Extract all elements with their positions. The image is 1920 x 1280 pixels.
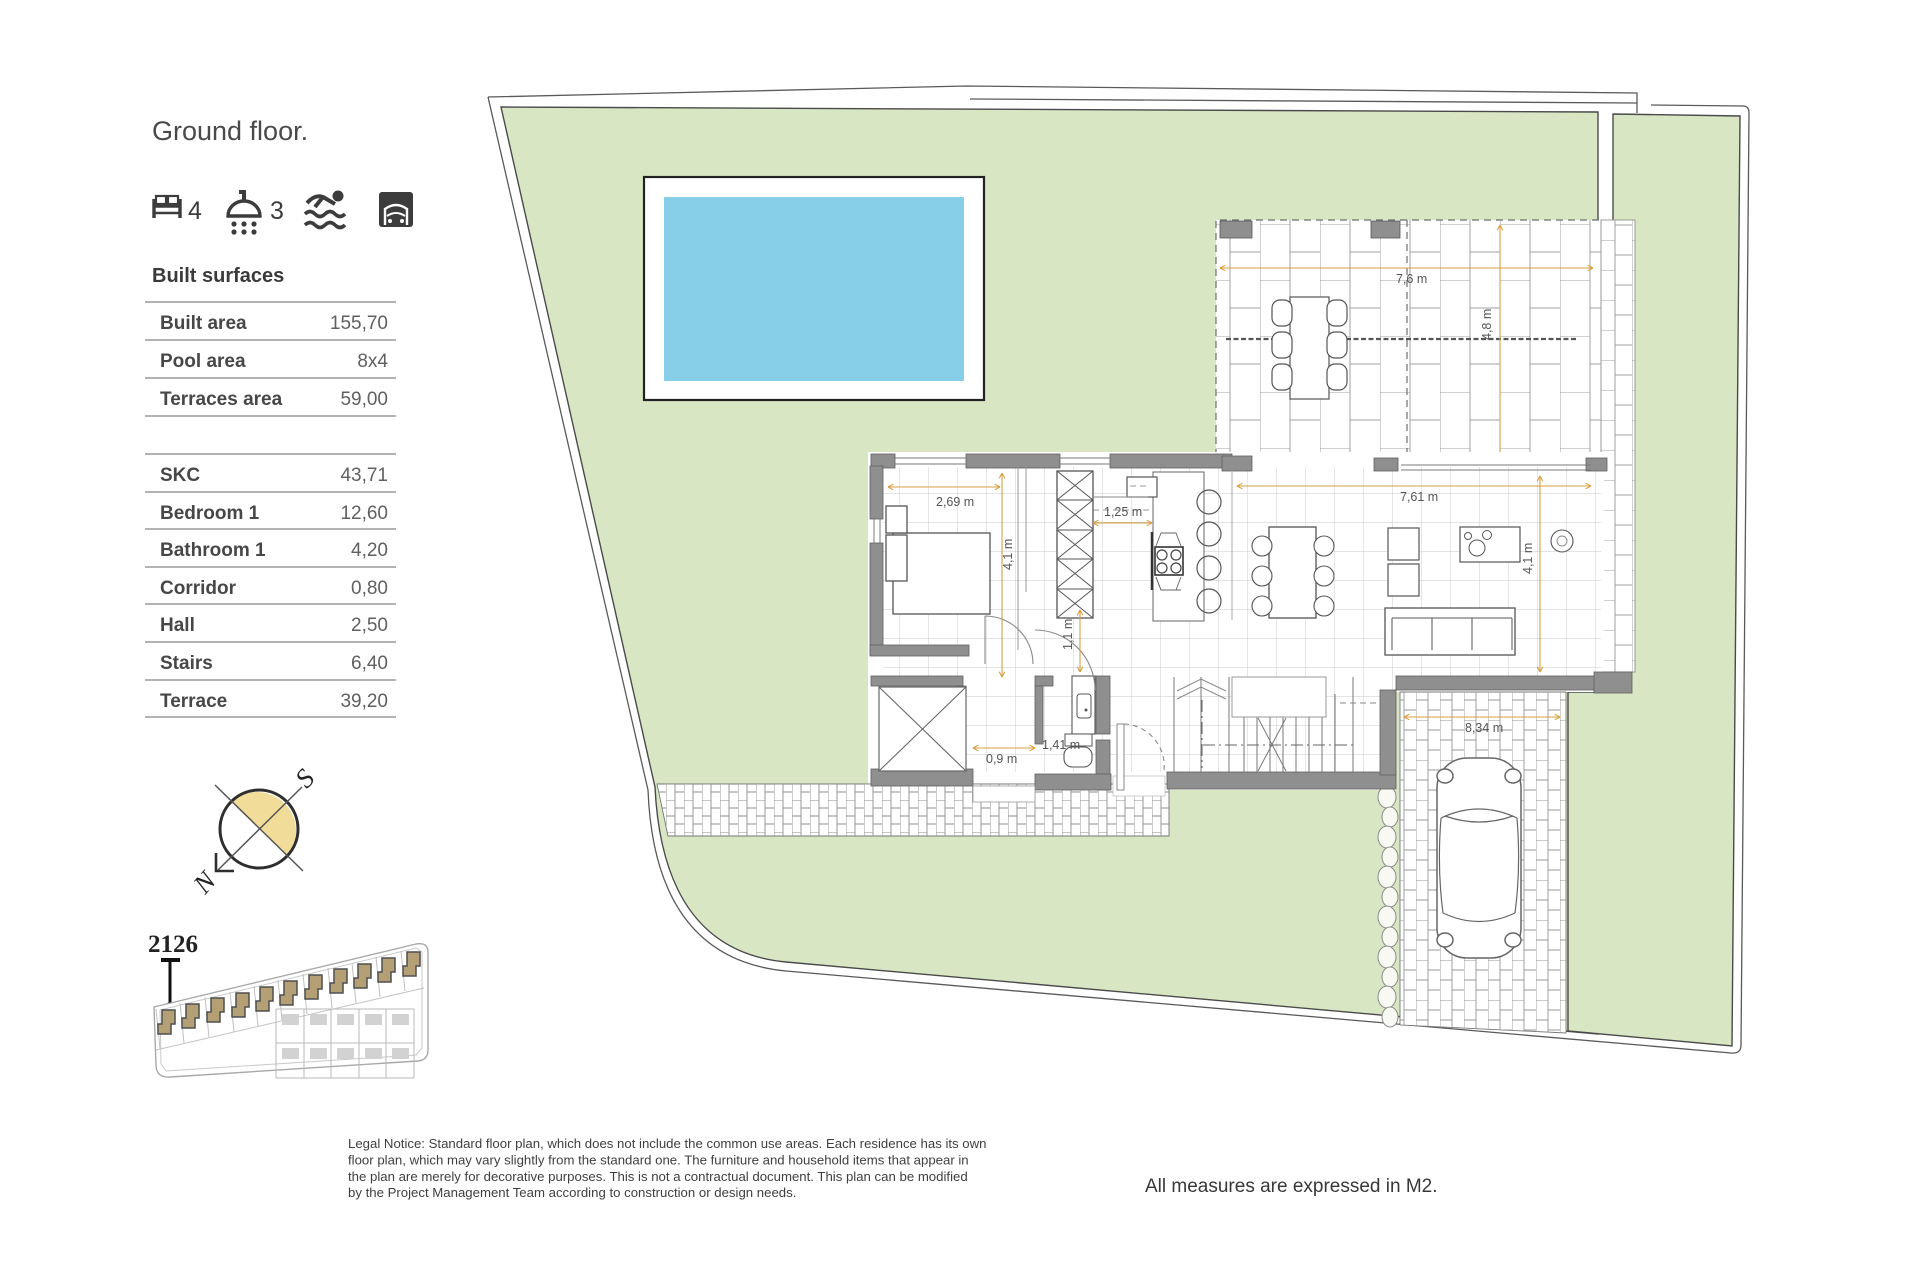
- svg-text:43,71: 43,71: [340, 465, 388, 486]
- svg-text:1,41 m: 1,41 m: [1042, 738, 1080, 752]
- svg-text:Corridor: Corridor: [160, 578, 237, 599]
- svg-text:Terrace: Terrace: [160, 691, 227, 712]
- svg-text:2,69 m: 2,69 m: [936, 495, 974, 509]
- svg-text:3: 3: [270, 197, 284, 225]
- svg-text:6,40: 6,40: [351, 653, 388, 674]
- svg-text:Stairs: Stairs: [160, 653, 213, 674]
- svg-text:7,6 m: 7,6 m: [1396, 272, 1427, 286]
- svg-text:59,00: 59,00: [340, 389, 388, 410]
- svg-text:the plan are merely for decora: the plan are merely for decorative purpo…: [348, 1169, 968, 1184]
- svg-text:Bathroom 1: Bathroom 1: [160, 540, 266, 561]
- svg-text:Pool area: Pool area: [160, 351, 246, 372]
- svg-text:1,25 m: 1,25 m: [1104, 505, 1142, 519]
- svg-text:Ground floor.: Ground floor.: [152, 116, 308, 146]
- svg-text:Built area: Built area: [160, 313, 247, 334]
- svg-text:39,20: 39,20: [340, 691, 388, 712]
- svg-text:12,60: 12,60: [340, 503, 388, 524]
- svg-text:2126: 2126: [148, 931, 198, 958]
- svg-text:4,20: 4,20: [351, 540, 388, 561]
- svg-text:7,61 m: 7,61 m: [1400, 490, 1438, 504]
- svg-text:S: S: [289, 763, 321, 793]
- svg-text:Built surfaces: Built surfaces: [152, 265, 284, 287]
- svg-text:4: 4: [188, 197, 202, 225]
- svg-text:Terraces area: Terraces area: [160, 389, 283, 410]
- svg-text:Bedroom 1: Bedroom 1: [160, 503, 260, 524]
- svg-text:All measures are expressed in: All measures are expressed in M2.: [1145, 1176, 1438, 1197]
- svg-text:Legal Notice: Standard floor p: Legal Notice: Standard floor plan, which…: [348, 1136, 987, 1151]
- svg-text:155,70: 155,70: [330, 313, 388, 334]
- svg-text:8x4: 8x4: [357, 351, 388, 372]
- svg-text:by the Project Management Team: by the Project Management Team according…: [348, 1185, 796, 1200]
- svg-text:SKC: SKC: [160, 465, 200, 486]
- svg-text:4,8 m: 4,8 m: [1480, 309, 1494, 340]
- svg-text:0,80: 0,80: [351, 578, 388, 599]
- svg-text:0,9 m: 0,9 m: [986, 752, 1017, 766]
- svg-text:1,1 m: 1,1 m: [1061, 619, 1075, 650]
- svg-text:Hall: Hall: [160, 615, 195, 636]
- svg-text:floor plan, which may vary sli: floor plan, which may vary slightly from…: [348, 1152, 969, 1167]
- svg-text:2,50: 2,50: [351, 615, 388, 636]
- svg-text:8,34 m: 8,34 m: [1465, 721, 1503, 735]
- svg-text:4,1 m: 4,1 m: [1521, 543, 1535, 574]
- svg-text:N: N: [187, 864, 223, 900]
- svg-text:4,1 m: 4,1 m: [1001, 539, 1015, 570]
